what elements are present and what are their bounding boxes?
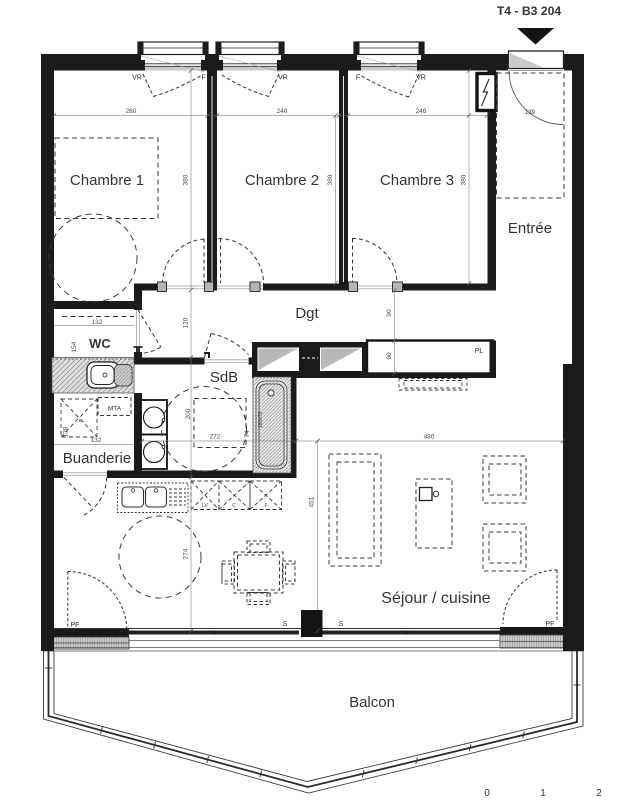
svg-text:138: 138 (63, 426, 70, 437)
svg-text:272: 272 (210, 434, 221, 441)
svg-text:Balcon: Balcon (349, 694, 395, 711)
svg-text:132: 132 (92, 319, 103, 326)
svg-text:LL: LL (79, 418, 85, 423)
svg-text:60: 60 (386, 352, 393, 360)
svg-text:0: 0 (484, 788, 490, 799)
svg-text:F: F (201, 75, 205, 82)
svg-text:F: F (212, 75, 216, 82)
svg-text:154: 154 (71, 341, 78, 352)
svg-text:480: 480 (424, 434, 435, 441)
svg-text:Dgt: Dgt (295, 305, 319, 322)
svg-text:Chambre 2: Chambre 2 (245, 172, 319, 189)
svg-text:S: S (283, 621, 288, 628)
svg-text:90: 90 (386, 309, 393, 317)
svg-text:240: 240 (277, 108, 288, 115)
svg-text:F: F (356, 75, 360, 82)
svg-text:VR: VR (132, 75, 142, 82)
svg-text:Buanderie: Buanderie (63, 450, 131, 467)
svg-text:74: 74 (244, 430, 251, 438)
svg-text:PL: PL (475, 348, 484, 355)
svg-text:120: 120 (183, 317, 190, 328)
svg-text:246: 246 (416, 108, 427, 115)
svg-text:WC: WC (89, 336, 111, 351)
svg-text:VR: VR (278, 75, 288, 82)
svg-text:132: 132 (91, 437, 102, 444)
svg-text:Chambre 1: Chambre 1 (70, 172, 144, 189)
svg-text:SdB: SdB (210, 369, 238, 386)
svg-text:1: 1 (540, 788, 546, 799)
svg-text:VR: VR (416, 75, 426, 82)
svg-text:380: 380 (183, 174, 190, 185)
svg-text:Entrée: Entrée (508, 220, 552, 237)
svg-text:C: C (232, 503, 236, 509)
svg-text:380: 380 (461, 174, 468, 185)
svg-text:2: 2 (596, 788, 602, 799)
svg-text:160x70: 160x70 (258, 411, 264, 428)
svg-text:139: 139 (525, 110, 536, 116)
svg-text:274: 274 (183, 548, 190, 559)
svg-text:PF: PF (546, 621, 555, 628)
svg-text:451: 451 (309, 496, 316, 507)
svg-text:LV: LV (202, 503, 208, 509)
svg-text:Séjour / cuisine: Séjour / cuisine (381, 590, 490, 607)
svg-text:S: S (339, 621, 344, 628)
svg-text:F: F (264, 503, 267, 509)
svg-text:280: 280 (126, 108, 137, 115)
svg-text:PF: PF (71, 622, 80, 629)
svg-text:MTA: MTA (108, 406, 122, 413)
svg-text:380: 380 (327, 174, 334, 185)
svg-text:T4 - B3 204: T4 - B3 204 (497, 4, 562, 18)
svg-text:Chambre 3: Chambre 3 (380, 172, 454, 189)
